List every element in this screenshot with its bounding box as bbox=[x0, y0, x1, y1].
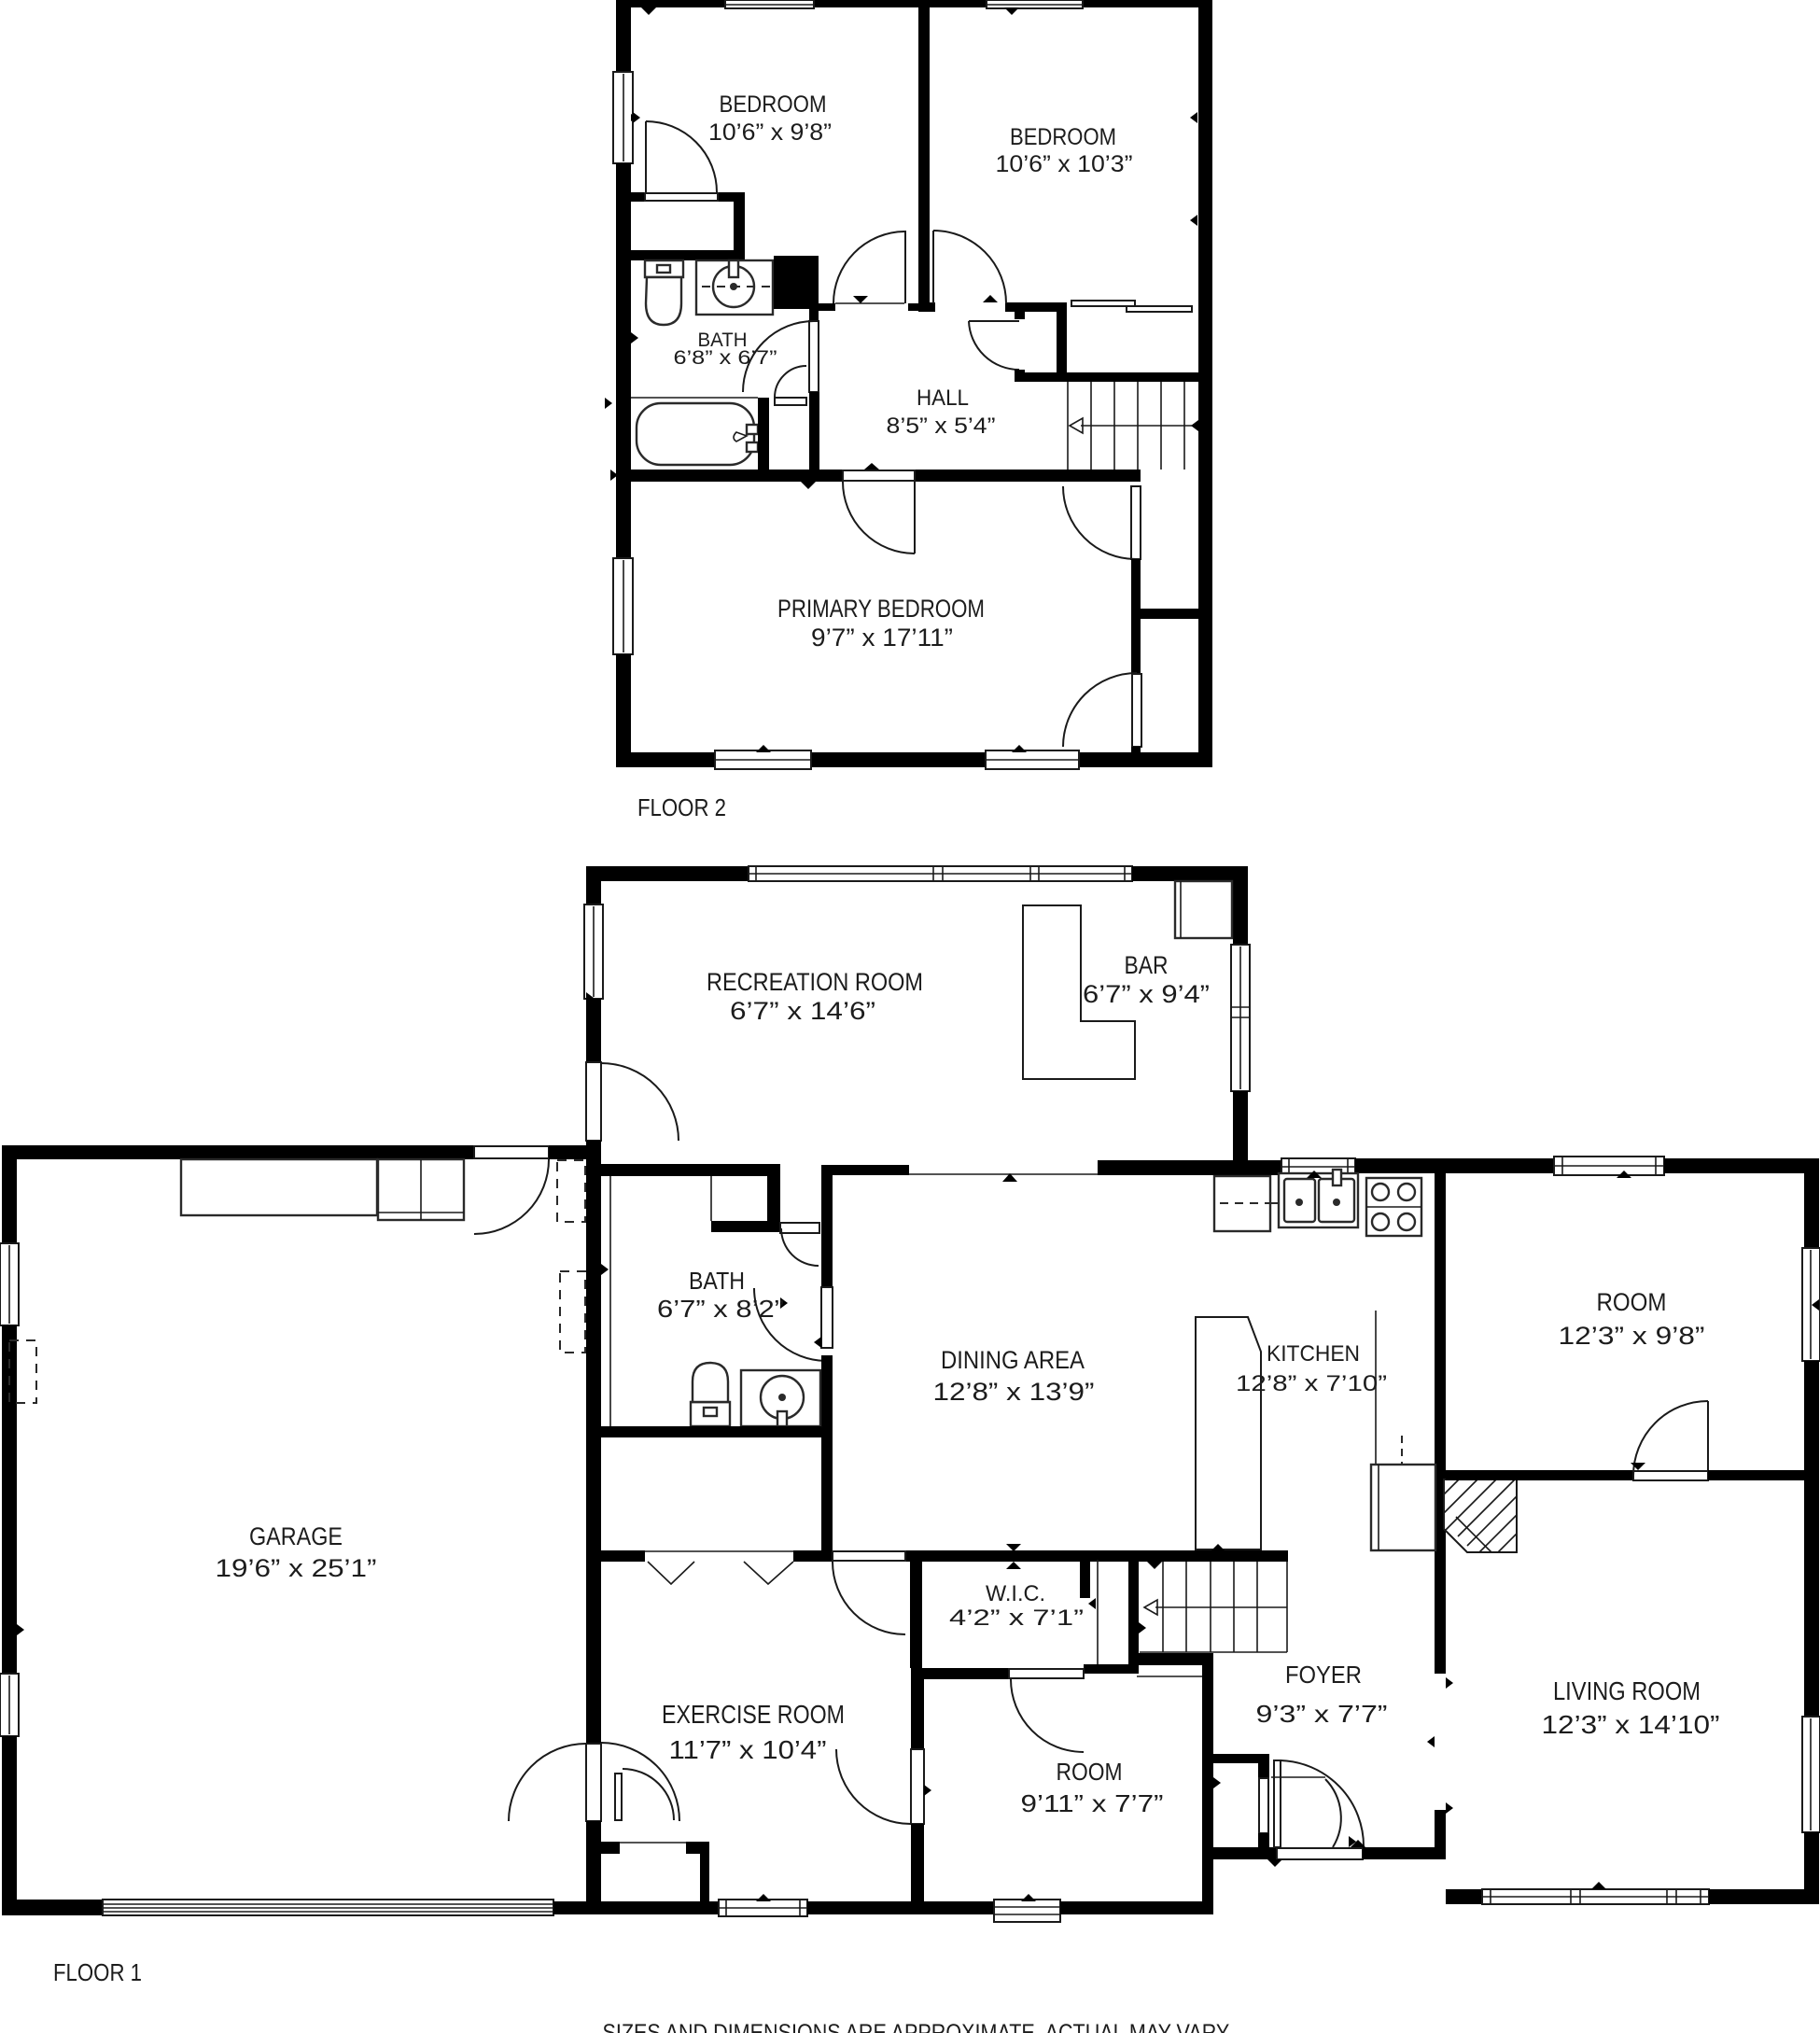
svg-text:8’5” x 5’4”: 8’5” x 5’4” bbox=[887, 414, 996, 439]
svg-text:9’11” x 7’7”: 9’11” x 7’7” bbox=[1021, 1789, 1164, 1817]
svg-text:EXERCISE ROOM: EXERCISE ROOM bbox=[662, 1700, 845, 1729]
svg-text:HALL: HALL bbox=[917, 386, 969, 411]
svg-text:12’3” x 9’8”: 12’3” x 9’8” bbox=[1559, 1322, 1705, 1350]
svg-text:12’3” x 14’10”: 12’3” x 14’10” bbox=[1542, 1710, 1720, 1739]
svg-text:RECREATION ROOM: RECREATION ROOM bbox=[707, 968, 923, 996]
svg-text:10’6” x 10’3”: 10’6” x 10’3” bbox=[996, 151, 1133, 177]
svg-text:4’2” x 7’1”: 4’2” x 7’1” bbox=[949, 1605, 1084, 1631]
svg-text:BATH: BATH bbox=[689, 1267, 745, 1295]
svg-text:BEDROOM: BEDROOM bbox=[1010, 124, 1116, 150]
svg-text:12’8” x 7’10”: 12’8” x 7’10” bbox=[1236, 1371, 1387, 1396]
svg-text:BAR: BAR bbox=[1125, 951, 1169, 979]
svg-text:BEDROOM: BEDROOM bbox=[720, 91, 827, 118]
svg-text:6’8” x 6’7”: 6’8” x 6’7” bbox=[674, 347, 777, 369]
svg-text:6’7” x 9’4”: 6’7” x 9’4” bbox=[1083, 980, 1210, 1008]
svg-text:19’6” x 25’1”: 19’6” x 25’1” bbox=[216, 1554, 377, 1582]
svg-text:DINING AREA: DINING AREA bbox=[941, 1346, 1085, 1374]
svg-text:ROOM: ROOM bbox=[1057, 1758, 1123, 1786]
svg-text:PRIMARY BEDROOM: PRIMARY BEDROOM bbox=[777, 595, 985, 623]
svg-text:GARAGE: GARAGE bbox=[249, 1522, 343, 1550]
svg-text:10’6” x 9’8”: 10’6” x 9’8” bbox=[708, 119, 832, 146]
svg-text:6’7” x 8’2”: 6’7” x 8’2” bbox=[657, 1295, 784, 1323]
svg-text:6’7” x 14’6”: 6’7” x 14’6” bbox=[730, 997, 875, 1025]
svg-text:ROOM: ROOM bbox=[1597, 1288, 1667, 1316]
svg-text:9’7” x 17’11”: 9’7” x 17’11” bbox=[811, 624, 953, 652]
svg-text:11’7” x 10’4”: 11’7” x 10’4” bbox=[669, 1735, 827, 1764]
svg-text:KITCHEN: KITCHEN bbox=[1267, 1341, 1360, 1367]
svg-text:FLOOR 2: FLOOR 2 bbox=[637, 793, 726, 821]
svg-text:12’8” x 13’9”: 12’8” x 13’9” bbox=[933, 1378, 1095, 1406]
svg-text:SIZES AND DIMENSIONS ARE APPRO: SIZES AND DIMENSIONS ARE APPROXIMATE, AC… bbox=[603, 2020, 1233, 2033]
svg-text:FLOOR 1: FLOOR 1 bbox=[53, 1958, 142, 1986]
svg-text:9’3” x 7’7”: 9’3” x 7’7” bbox=[1256, 1700, 1388, 1728]
svg-text:LIVING ROOM: LIVING ROOM bbox=[1553, 1676, 1701, 1705]
svg-text:FOYER: FOYER bbox=[1285, 1661, 1362, 1689]
svg-text:W.I.C.: W.I.C. bbox=[986, 1581, 1045, 1606]
